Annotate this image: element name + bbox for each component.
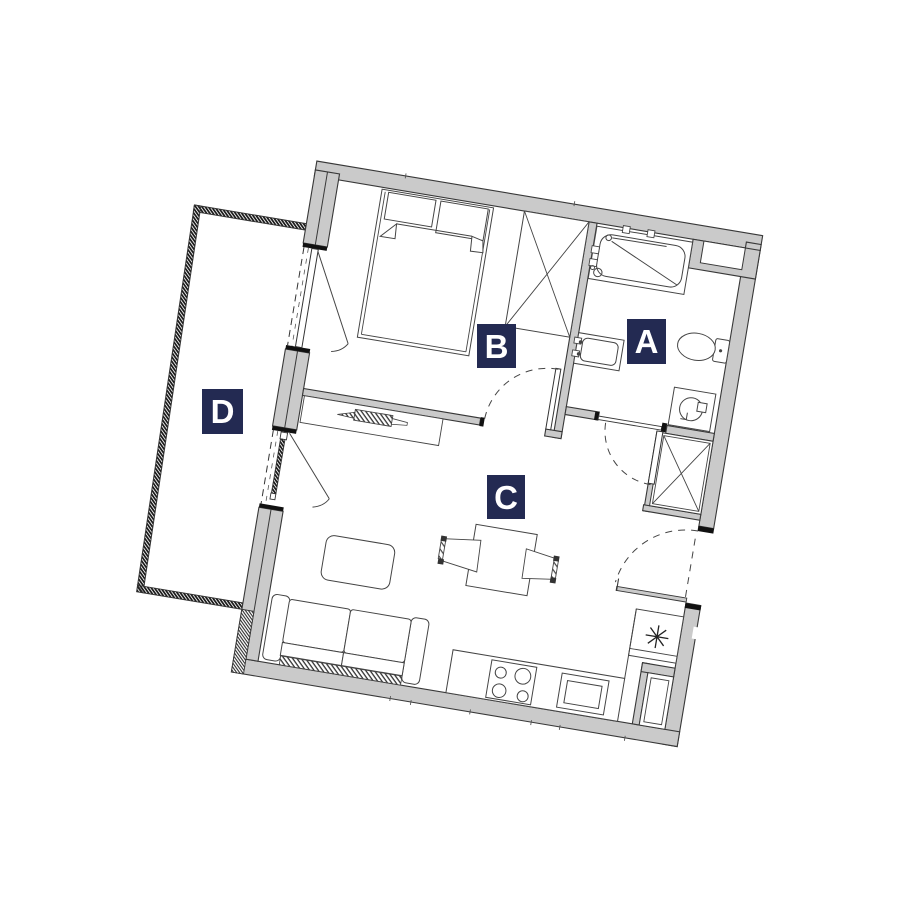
svg-text:A: A [635, 323, 659, 360]
svg-text:C: C [494, 479, 518, 516]
svg-text:D: D [211, 393, 235, 430]
svg-text:B: B [485, 328, 509, 365]
